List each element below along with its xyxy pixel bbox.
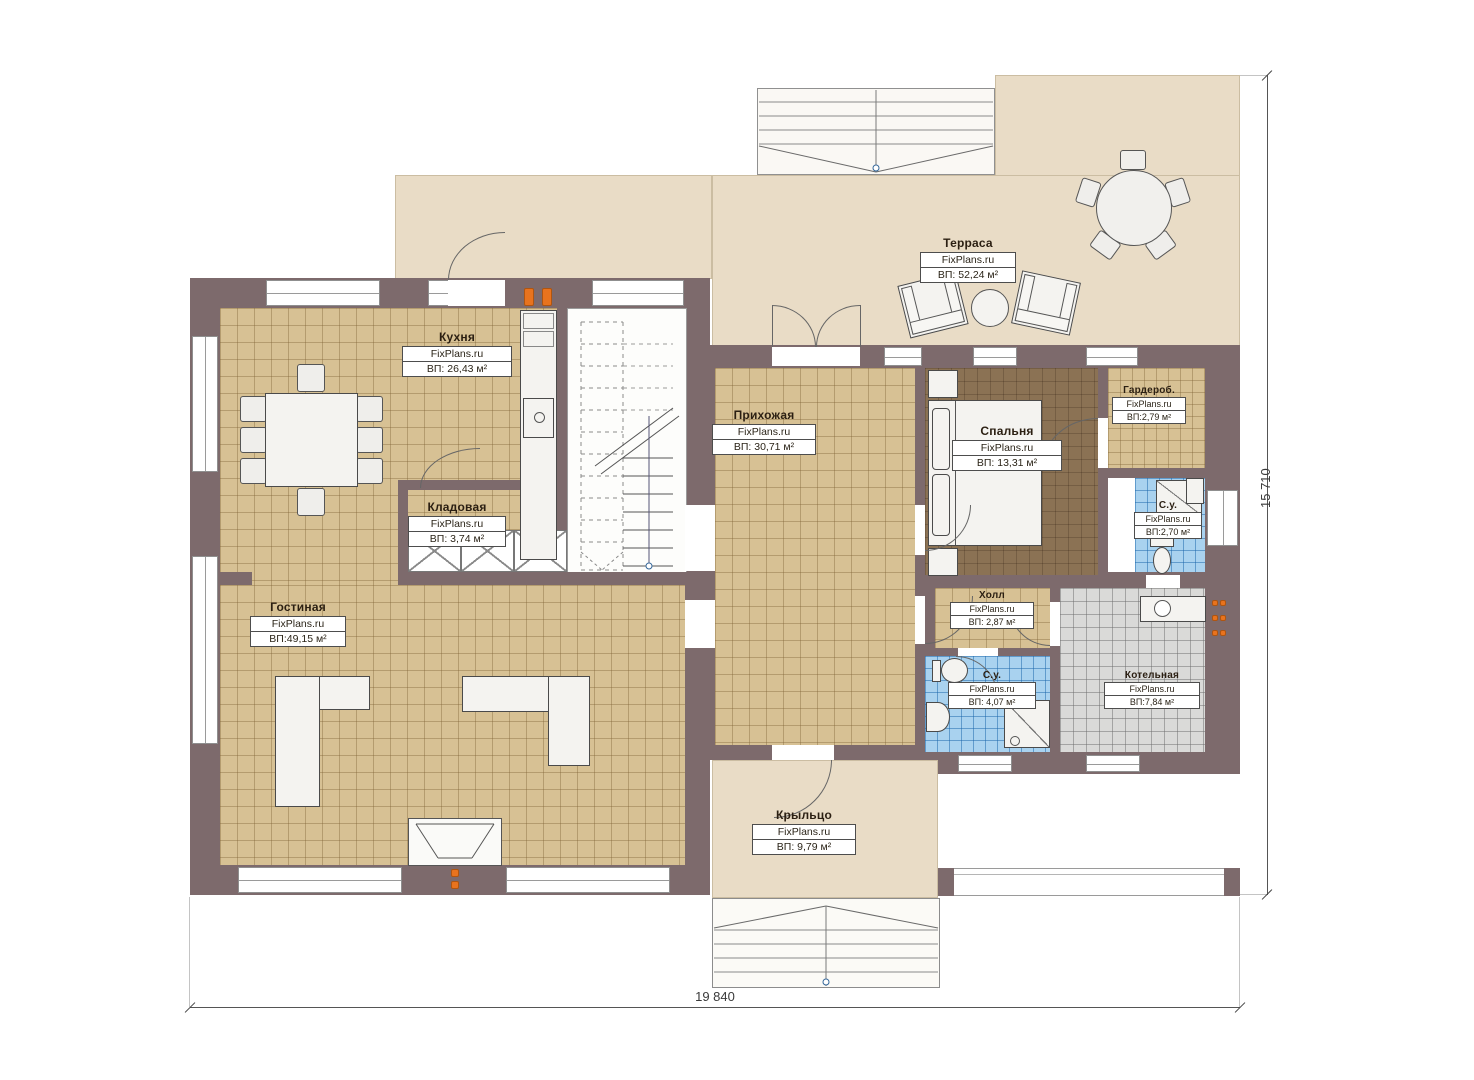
window [1086, 347, 1138, 366]
room-name: Прихожая [712, 408, 816, 422]
brand-label: FixPlans.ru [1113, 398, 1185, 410]
wall-opening [685, 600, 715, 648]
dimension-height: 15 710 [1258, 468, 1273, 508]
boiler-vent [1212, 630, 1218, 636]
boiler-vent [1220, 630, 1226, 636]
room-label-bathroom-bottom: С.у. FixPlans.ru ВП: 4,07 м² [948, 670, 1036, 709]
room-name: Гостиная [250, 600, 346, 614]
brand-label: FixPlans.ru [713, 425, 815, 439]
room-label-kitchen: Кухня FixPlans.ru ВП: 26,43 м² [402, 330, 512, 377]
window [192, 556, 218, 744]
room-name: Терраса [920, 236, 1016, 250]
boiler-vent [1220, 600, 1226, 606]
staircase [567, 308, 687, 585]
room-name: Кладовая [408, 500, 506, 514]
brand-label: FixPlans.ru [409, 517, 505, 531]
room-name: Холл [950, 590, 1034, 601]
bathroom-sink [926, 702, 950, 732]
room-area: ВП:7,84 м² [1105, 695, 1199, 708]
door-opening [958, 648, 998, 656]
chair [356, 427, 383, 453]
boiler-sink-icon [1154, 600, 1171, 617]
boiler-counter [1140, 596, 1206, 622]
chair [240, 458, 267, 484]
extension-line [1240, 894, 1268, 895]
floor-plan: Терраса FixPlans.ru ВП: 52,24 м² Кухня F… [0, 0, 1474, 1080]
shower-drain-icon [1010, 736, 1020, 746]
door-opening [915, 505, 925, 555]
interior-wall [398, 572, 687, 585]
room-label-bedroom: Спальня FixPlans.ru ВП: 13,31 м² [952, 424, 1062, 471]
nightstand [928, 370, 958, 398]
room-label-terrace: Терраса FixPlans.ru ВП: 52,24 м² [920, 236, 1016, 283]
boiler-vent [1212, 615, 1218, 621]
side-table [971, 289, 1009, 327]
room-name: С.у. [948, 670, 1036, 681]
brand-label: FixPlans.ru [953, 441, 1061, 455]
oven [523, 331, 554, 347]
room-name: Крыльцо [752, 808, 856, 822]
brand-label: FixPlans.ru [949, 683, 1035, 695]
brand-label: FixPlans.ru [951, 603, 1033, 615]
chair [1120, 150, 1146, 170]
deck-post [938, 868, 954, 896]
chair [240, 427, 267, 453]
round-table [1096, 170, 1172, 246]
bathroom-vanity-area [1108, 478, 1135, 572]
chair [240, 396, 267, 422]
extension-line [189, 897, 190, 1007]
chair [356, 396, 383, 422]
chimney-vent [451, 869, 459, 877]
window [973, 347, 1017, 366]
room-label-pantry: Кладовая FixPlans.ru ВП: 3,74 м² [408, 500, 506, 547]
pillow [932, 408, 950, 470]
room-area: ВП: 3,74 м² [409, 531, 505, 546]
room-label-boiler-room: Котельная FixPlans.ru ВП:7,84 м² [1104, 670, 1200, 709]
window [1086, 755, 1140, 772]
stove-burners [524, 288, 534, 306]
door-opening [772, 347, 860, 366]
room-label-bathroom-top: С.у. FixPlans.ru ВП:2,70 м² [1134, 500, 1202, 539]
interior-wall [1108, 468, 1205, 478]
room-name: Кухня [402, 330, 512, 344]
brand-label: FixPlans.ru [403, 347, 511, 361]
room-label-wardrobe: Гардероб. FixPlans.ru ВП:2,79 м² [1112, 385, 1186, 424]
toilet [1153, 547, 1171, 574]
window [238, 867, 402, 893]
interior-wall [925, 575, 1225, 588]
wall-opening [685, 505, 715, 571]
room-name: Гардероб. [1112, 385, 1186, 396]
brand-label: FixPlans.ru [753, 825, 855, 839]
room-name: Котельная [1104, 670, 1200, 681]
porch-steps [712, 898, 940, 988]
door-opening [1050, 602, 1060, 646]
dining-table [265, 393, 358, 487]
sofa [548, 676, 590, 766]
terrace-floor [995, 75, 1240, 176]
door-leaf [860, 305, 861, 347]
door-opening [1146, 575, 1180, 588]
room-area: ВП: 52,24 м² [921, 267, 1015, 282]
chimney-vent [451, 881, 459, 889]
room-area: ВП: 13,31 м² [953, 455, 1061, 470]
interior-wall [398, 480, 408, 572]
chair [297, 488, 325, 516]
room-name: С.у. [1134, 500, 1202, 511]
room-area: ВП: 2,87 м² [951, 615, 1033, 628]
room-label-hall: Холл FixPlans.ru ВП: 2,87 м² [950, 590, 1034, 629]
sofa [275, 676, 320, 807]
window [192, 336, 218, 472]
door-opening [772, 745, 834, 760]
interior-wall [1098, 368, 1108, 578]
window [958, 755, 1012, 772]
window [1207, 490, 1238, 546]
terrace-floor [395, 175, 712, 279]
room-label-living-room: Гостиная FixPlans.ru ВП:49,15 м² [250, 600, 346, 647]
room-name: Спальня [952, 424, 1062, 438]
dimension-width: 19 840 [640, 989, 790, 1004]
room-area: ВП:2,79 м² [1113, 410, 1185, 423]
door-opening [1098, 418, 1108, 468]
room-area: ВП: 26,43 м² [403, 361, 511, 376]
room-area: ВП: 9,79 м² [753, 839, 855, 854]
chair [356, 458, 383, 484]
deck-post [1224, 868, 1240, 896]
deck-line [938, 874, 1240, 875]
window [592, 280, 684, 306]
toilet-tank [1150, 538, 1174, 547]
chair [297, 364, 325, 392]
brand-label: FixPlans.ru [1135, 513, 1201, 525]
window [266, 280, 380, 306]
oven [523, 313, 554, 329]
extension-line [1240, 75, 1268, 76]
boiler-vent [1220, 615, 1226, 621]
room-area: ВП:49,15 м² [251, 631, 345, 646]
room-label-porch: Крыльцо FixPlans.ru ВП: 9,79 м² [752, 808, 856, 855]
brand-label: FixPlans.ru [1105, 683, 1199, 695]
terrace-steps [757, 88, 995, 175]
fireplace [408, 818, 502, 866]
room-area: ВП:2,70 м² [1135, 525, 1201, 538]
boiler-vent [1212, 600, 1218, 606]
faucet-icon [534, 412, 545, 423]
window [506, 867, 670, 893]
extension-line [1239, 897, 1240, 1007]
brand-label: FixPlans.ru [251, 617, 345, 631]
room-area: ВП: 4,07 м² [949, 695, 1035, 708]
room-area: ВП: 30,71 м² [713, 439, 815, 454]
dimension-line-bottom [190, 1007, 1240, 1008]
deck-railing [938, 868, 1240, 896]
toilet-tank [932, 660, 941, 682]
door-opening [915, 596, 925, 644]
brand-label: FixPlans.ru [921, 253, 1015, 267]
room-label-entry-hall: Прихожая FixPlans.ru ВП: 30,71 м² [712, 408, 816, 455]
door-opening [448, 280, 505, 306]
nightstand [928, 548, 958, 576]
window [884, 347, 922, 366]
stove-burners [542, 288, 552, 306]
